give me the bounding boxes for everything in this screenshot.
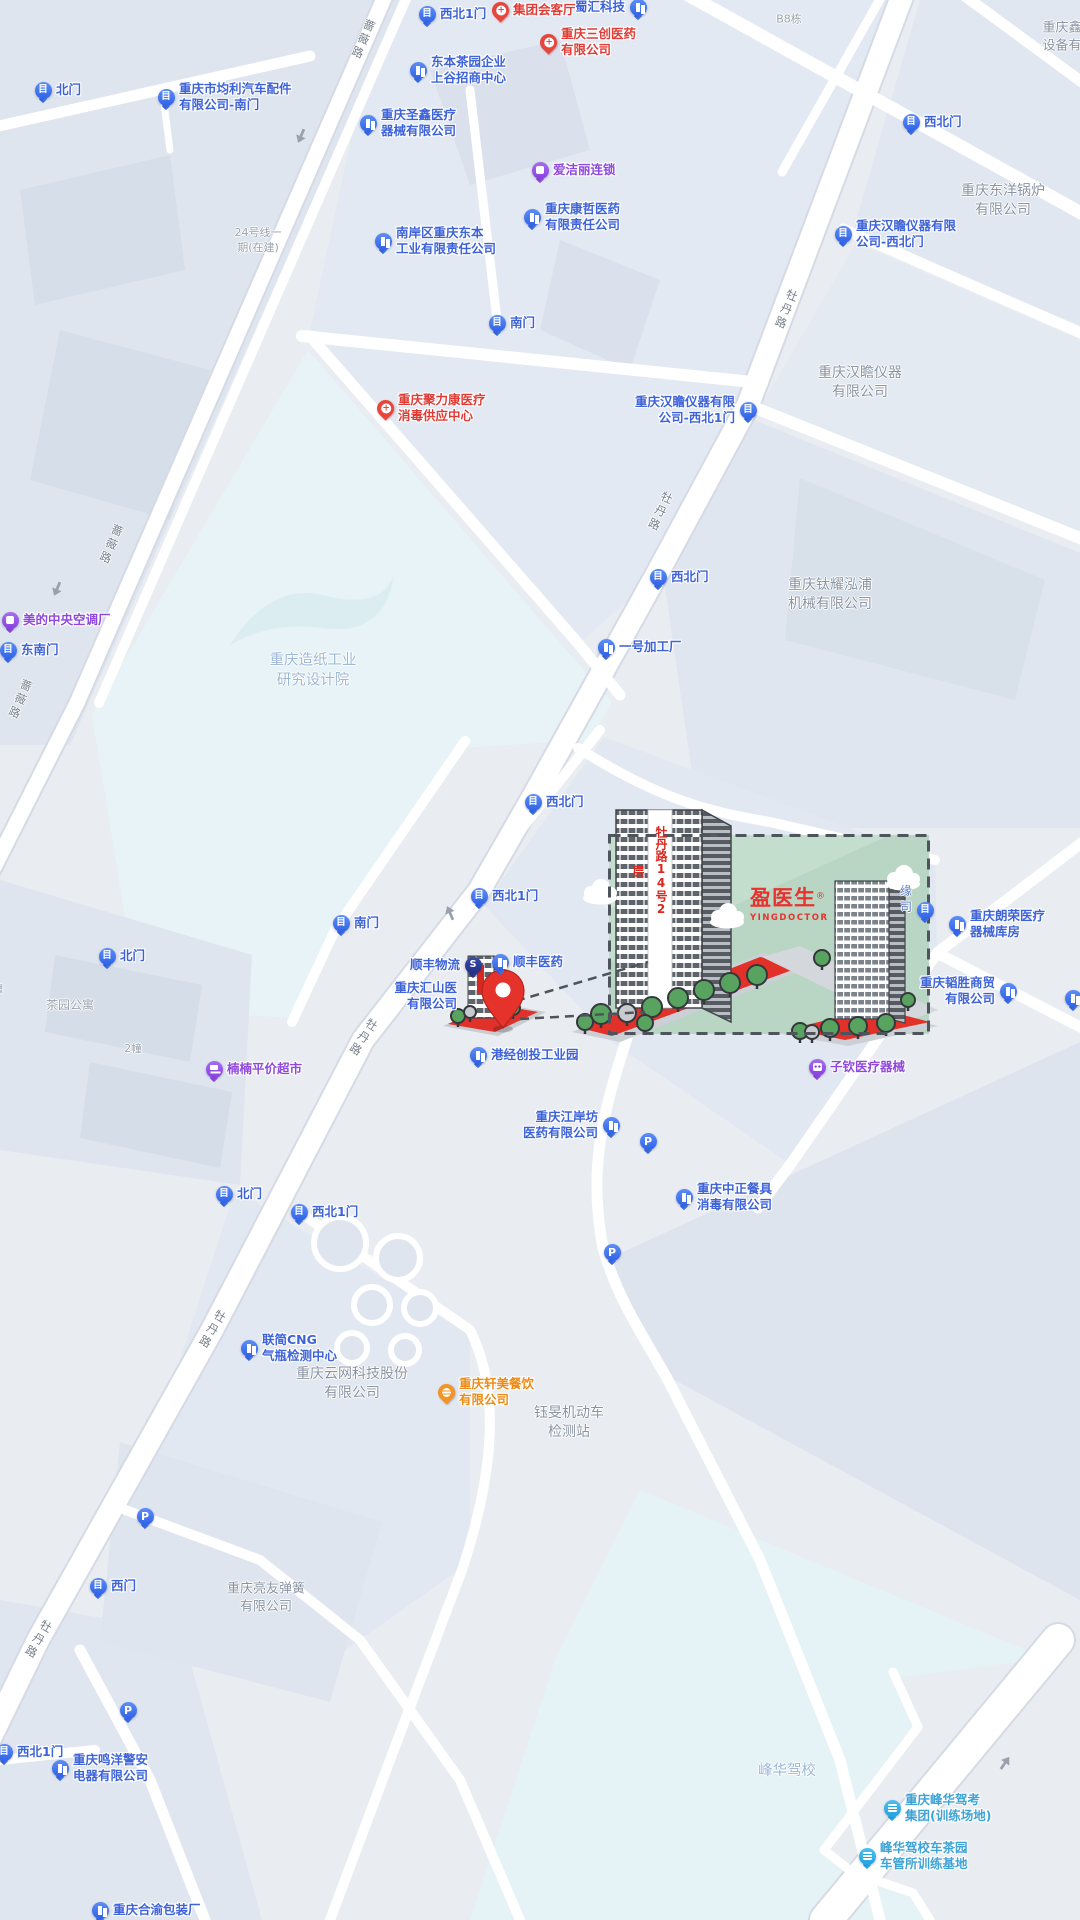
building-icon[interactable] (1065, 990, 1080, 1007)
parking-icon[interactable]: P (640, 1133, 657, 1150)
building-icon[interactable] (410, 62, 427, 79)
gate-icon[interactable]: 目 (525, 794, 542, 811)
area-label-0: B8栋 (776, 13, 802, 28)
poi-label: 重庆韬胜商贸有限公司 (920, 975, 995, 1007)
poi-label: 重庆合渝包装厂 (113, 1902, 201, 1918)
gate-icon[interactable]: 目 (419, 6, 436, 23)
gate-icon[interactable]: 目 (471, 888, 488, 905)
gate-icon[interactable]: 目 (835, 226, 852, 243)
road-name-label-3: 牡丹路 (770, 287, 801, 333)
poi-label: 南门 (354, 915, 379, 931)
building-icon[interactable] (524, 209, 541, 226)
map-canvas[interactable]: 牡丹路14号2层 盈医生® YINGDOCTOR 目西北1门目北门目重庆市均利汽… (0, 0, 1080, 1920)
poi-label: 重庆中正餐具消毒有限公司 (697, 1181, 772, 1213)
gate-icon[interactable]: 目 (99, 948, 116, 965)
gate-icon[interactable]: 目 (903, 114, 920, 131)
poi-label: 美的中央空调厂 (23, 612, 111, 628)
poi-label: 南岸区重庆东本工业有限责任公司 (396, 225, 496, 257)
poi-label: 顺丰物流 (410, 957, 460, 973)
building-icon[interactable] (630, 0, 647, 16)
poi-label: 重庆聚力康医疗消毒供应中心 (398, 392, 486, 424)
road-name-label-1: 蔷薇路 (95, 522, 127, 568)
school-icon[interactable] (859, 1848, 876, 1865)
poi-label: 西北1门 (440, 6, 486, 22)
building-icon[interactable] (676, 1189, 693, 1206)
building-icon[interactable] (492, 954, 509, 971)
area-label-11: 钰旻机动车检测站 (534, 1404, 604, 1442)
area-label-7: 茶园公寓 (46, 997, 94, 1013)
food-icon[interactable] (434, 1380, 458, 1404)
building-icon[interactable] (598, 639, 615, 656)
gate-icon[interactable]: 目 (35, 82, 52, 99)
poi-label: 西北1门 (312, 1204, 358, 1220)
poi-label: 重庆汇山医有限公司 (394, 980, 457, 1012)
area-label-6: 重庆造纸工业研究设计院 (270, 651, 357, 690)
poi-label: 西北1门 (17, 1744, 63, 1760)
area-label-5: 重庆钛耀泓浦机械有限公司 (788, 576, 872, 614)
road-name-label-2: 蔷薇路 (4, 677, 36, 723)
building-icon[interactable] (360, 115, 377, 132)
poi-label: 一号加工厂 (619, 639, 682, 655)
parking-icon[interactable]: P (604, 1244, 621, 1261)
area-label-13: 峰华驾校 (758, 1762, 816, 1782)
poi-label: 东本茶园企业上谷招商中心 (431, 54, 506, 86)
road-name-label-7: 牡丹路 (20, 1617, 56, 1663)
building-icon[interactable] (603, 1117, 620, 1134)
poi-label: 北门 (237, 1186, 262, 1202)
area-label-8: 幢 (0, 983, 3, 997)
poi-label: 港经创投工业园 (491, 1047, 579, 1063)
poi-layer: 目西北1门目北门目重庆市均利汽车配件有限公司-南门目西北门目重庆汉瞻仪器有限公司… (0, 0, 1080, 1920)
poi-label: 重庆康哲医药有限责任公司 (545, 201, 620, 233)
poi-label: 集团会客厅 (513, 2, 576, 18)
poi-label: 南门 (510, 315, 535, 331)
gate-icon[interactable]: 目 (333, 915, 350, 932)
poi-label: 顺丰医药 (513, 954, 563, 970)
poi-label: 西北1门 (492, 888, 538, 904)
road-name-label-5: 牡丹路 (344, 1015, 381, 1060)
poi-label: 子钦医疗器械 (830, 1059, 905, 1075)
poi-label: 北门 (56, 82, 81, 98)
poi-label: 西北门 (671, 569, 709, 585)
poi-label: 重庆市均利汽车配件有限公司-南门 (179, 81, 292, 113)
area-label-3: 重庆东洋锅炉有限公司 (961, 182, 1045, 220)
ac-icon[interactable] (2, 612, 19, 629)
gate-icon[interactable]: 目 (650, 569, 667, 586)
medical-icon[interactable]: + (373, 396, 397, 420)
poi-label: 重庆鸣洋警安电器有限公司 (73, 1752, 148, 1784)
gate-icon[interactable]: 目 (740, 402, 757, 419)
poi-label: 楠楠平价超市 (227, 1061, 302, 1077)
poi-label: 重庆三创医药有限公司 (561, 26, 636, 58)
poi-label: 重庆朗荣医疗器械库房 (970, 908, 1045, 940)
poi-label: 重庆汉瞻仪器有限公司-西北1门 (635, 394, 735, 426)
building-icon[interactable] (1000, 983, 1017, 1000)
gate-icon[interactable]: 目 (291, 1204, 308, 1221)
road-direction-arrow-icon (442, 904, 457, 922)
poi-label: 西北门 (546, 794, 584, 810)
parking-icon[interactable]: P (120, 1702, 137, 1719)
clean-icon[interactable] (532, 162, 549, 179)
poi-label: 西门 (111, 1578, 136, 1594)
road-direction-arrow-icon (997, 1754, 1014, 1772)
gate-icon[interactable]: 目 (489, 315, 506, 332)
cart-icon[interactable] (206, 1061, 223, 1078)
building-icon[interactable] (241, 1340, 258, 1357)
building-icon[interactable] (949, 916, 966, 933)
med2-icon[interactable] (809, 1059, 826, 1076)
area-label-2: 24号线一期(在建) (235, 226, 282, 256)
poi-label: 重庆江岸坊医药有限公司 (523, 1109, 598, 1141)
poi-label: 重庆汉瞻仪器有限公司-西北门 (856, 218, 956, 250)
medical-icon[interactable]: + (536, 30, 560, 54)
gate-icon[interactable]: 目 (0, 642, 17, 659)
medical-icon[interactable]: + (488, 0, 512, 22)
poi-label: 重庆圣鑫医疗器械有限公司 (381, 107, 456, 139)
area-label-12: 重庆亮友弹簧有限公司 (227, 1580, 305, 1615)
poi-label: 蜀汇科技 (575, 0, 625, 15)
road-direction-arrow-icon (49, 580, 64, 598)
area-label-14: 缘司 (900, 883, 912, 915)
area-label-1: 重庆鑫设备有 (1042, 19, 1080, 54)
poi-label: 峰华驾校车茶园车管所训练基地 (880, 1840, 968, 1872)
gate-icon[interactable]: 目 (917, 902, 934, 919)
poi-label: 联简CNG气瓶检测中心 (262, 1332, 337, 1364)
poi-label: 西北门 (924, 114, 962, 130)
poi-label: 爱洁丽连锁 (553, 162, 616, 178)
building-icon[interactable] (52, 1760, 69, 1777)
school-icon[interactable] (884, 1800, 901, 1817)
area-label-4: 重庆汉瞻仪器有限公司 (818, 364, 902, 402)
road-name-label-6: 牡丹路 (194, 1307, 230, 1353)
road-name-label-4: 牡丹路 (644, 489, 677, 535)
poi-label: 北门 (120, 948, 145, 964)
gate-icon[interactable]: 目 (158, 89, 175, 106)
building-icon[interactable] (470, 1047, 487, 1064)
road-name-label-0: 蔷薇路 (347, 17, 379, 63)
road-direction-arrow-icon (293, 127, 308, 145)
poi-label: 重庆峰华驾考集团(训练场地) (905, 1792, 991, 1824)
gate-icon[interactable]: 目 (90, 1578, 107, 1595)
poi-label: 重庆轩美餐饮有限公司 (459, 1376, 534, 1408)
sf-icon[interactable]: S (465, 957, 482, 974)
building-icon[interactable] (375, 233, 392, 250)
parking-icon[interactable]: P (137, 1508, 154, 1525)
gate-icon[interactable]: 目 (0, 1744, 13, 1761)
gate-icon[interactable]: 目 (216, 1186, 233, 1203)
poi-label: 东南门 (21, 642, 59, 658)
area-label-9: 2幢 (124, 1042, 141, 1056)
building-icon[interactable] (92, 1902, 109, 1919)
area-label-10: 重庆云网科技股份有限公司 (296, 1365, 408, 1403)
